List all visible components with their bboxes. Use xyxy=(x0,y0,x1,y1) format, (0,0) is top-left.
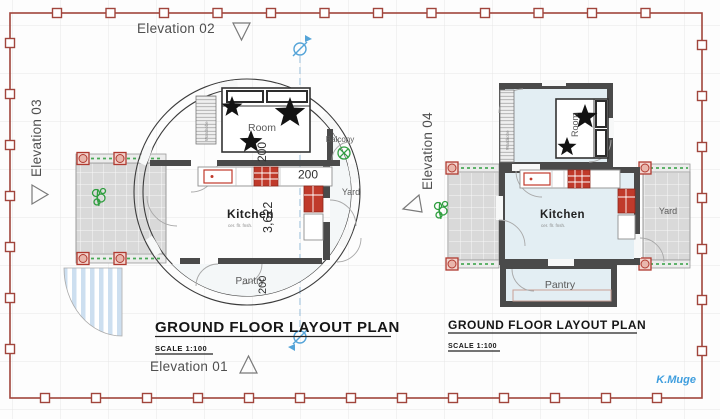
kitchen-finish-note: cer. flr. fnsh. xyxy=(228,223,252,228)
elevation-03-label: Elevation 03 xyxy=(29,99,44,177)
dim-yard: 200 xyxy=(298,168,318,182)
border-square xyxy=(481,9,490,18)
border-square xyxy=(698,194,707,203)
elevation-02-label: Elevation 02 xyxy=(137,21,215,36)
border-square xyxy=(6,192,15,201)
circular-plan-title: GROUND FLOOR LAYOUT PLAN xyxy=(155,319,400,336)
stove xyxy=(254,167,278,186)
border-square xyxy=(194,394,203,403)
border-square xyxy=(449,394,458,403)
drawing-canvas: Wardrobe xyxy=(0,0,720,419)
border-square xyxy=(6,39,15,48)
border-square xyxy=(698,92,707,101)
border-square xyxy=(602,394,611,403)
yard-label: Yard xyxy=(659,206,677,216)
border-square xyxy=(296,394,305,403)
dim-pantry: 200 xyxy=(257,276,269,294)
signature: K.Muge xyxy=(656,374,696,386)
border-square xyxy=(6,345,15,354)
stove xyxy=(568,170,590,188)
border-square xyxy=(653,394,662,403)
border-square xyxy=(53,9,62,18)
border-square xyxy=(374,9,383,18)
border-square xyxy=(500,394,509,403)
border-square xyxy=(160,9,169,18)
border-square xyxy=(267,9,276,18)
border-square xyxy=(698,245,707,254)
bed xyxy=(556,99,608,158)
elevation-01-label: Elevation 01 xyxy=(150,359,228,374)
border-square xyxy=(551,394,560,403)
border-square xyxy=(92,394,101,403)
dim-kitchen: 3,622 xyxy=(261,202,275,233)
border-square xyxy=(698,296,707,305)
yard-label: Yard xyxy=(342,187,360,197)
column-icon xyxy=(446,258,458,270)
circular-plan-scale: SCALE 1:100 xyxy=(155,344,207,353)
dim-room: 200 xyxy=(255,142,269,162)
rect-plan-yard xyxy=(639,162,690,270)
border-square xyxy=(106,9,115,18)
column-icon xyxy=(114,153,126,165)
border-square xyxy=(588,9,597,18)
balcony-label: Balcony xyxy=(326,135,354,144)
border-square xyxy=(698,143,707,152)
elevation-04-label: Elevation 04 xyxy=(420,112,435,190)
border-square xyxy=(398,394,407,403)
column-icon xyxy=(114,253,126,265)
room-label: Room xyxy=(248,122,276,134)
border-square xyxy=(320,9,329,18)
wardrobe: Wardrobe xyxy=(500,90,514,162)
border-square xyxy=(698,347,707,356)
border-square xyxy=(143,394,152,403)
border-square xyxy=(6,141,15,150)
column-icon xyxy=(77,153,89,165)
sink xyxy=(204,170,232,183)
sink xyxy=(524,173,550,185)
pillow xyxy=(596,130,606,156)
wardrobe-label: Wardrobe xyxy=(505,130,510,150)
pillow xyxy=(267,91,307,102)
pantry-label: Pantry xyxy=(545,279,576,291)
border-square xyxy=(347,394,356,403)
border-square xyxy=(41,394,50,403)
column-icon xyxy=(639,258,651,270)
border-square xyxy=(213,9,222,18)
border-square xyxy=(6,243,15,252)
column-icon xyxy=(446,162,458,174)
border-square xyxy=(245,394,254,403)
kitchen-finish-note: cer. flr. fnsh. xyxy=(541,223,565,228)
column-icon xyxy=(639,162,651,174)
floor-plan-sheet: Wardrobe xyxy=(0,0,720,419)
wardrobe-label: Wardrobe xyxy=(204,121,209,141)
kitchen-label: Kitchen xyxy=(540,209,585,221)
border-square xyxy=(427,9,436,18)
wardrobe: Wardrobe xyxy=(196,96,216,144)
border-square xyxy=(6,90,15,99)
room-label: Room xyxy=(570,113,580,137)
rect-plan-title: GROUND FLOOR LAYOUT PLAN xyxy=(448,318,646,332)
rect-plan-scale: SCALE 1:100 xyxy=(448,343,497,350)
pillow xyxy=(596,101,606,127)
border-square xyxy=(534,9,543,18)
border-square xyxy=(698,41,707,50)
border-square xyxy=(6,294,15,303)
border-square xyxy=(641,9,650,18)
column-icon xyxy=(77,253,89,265)
